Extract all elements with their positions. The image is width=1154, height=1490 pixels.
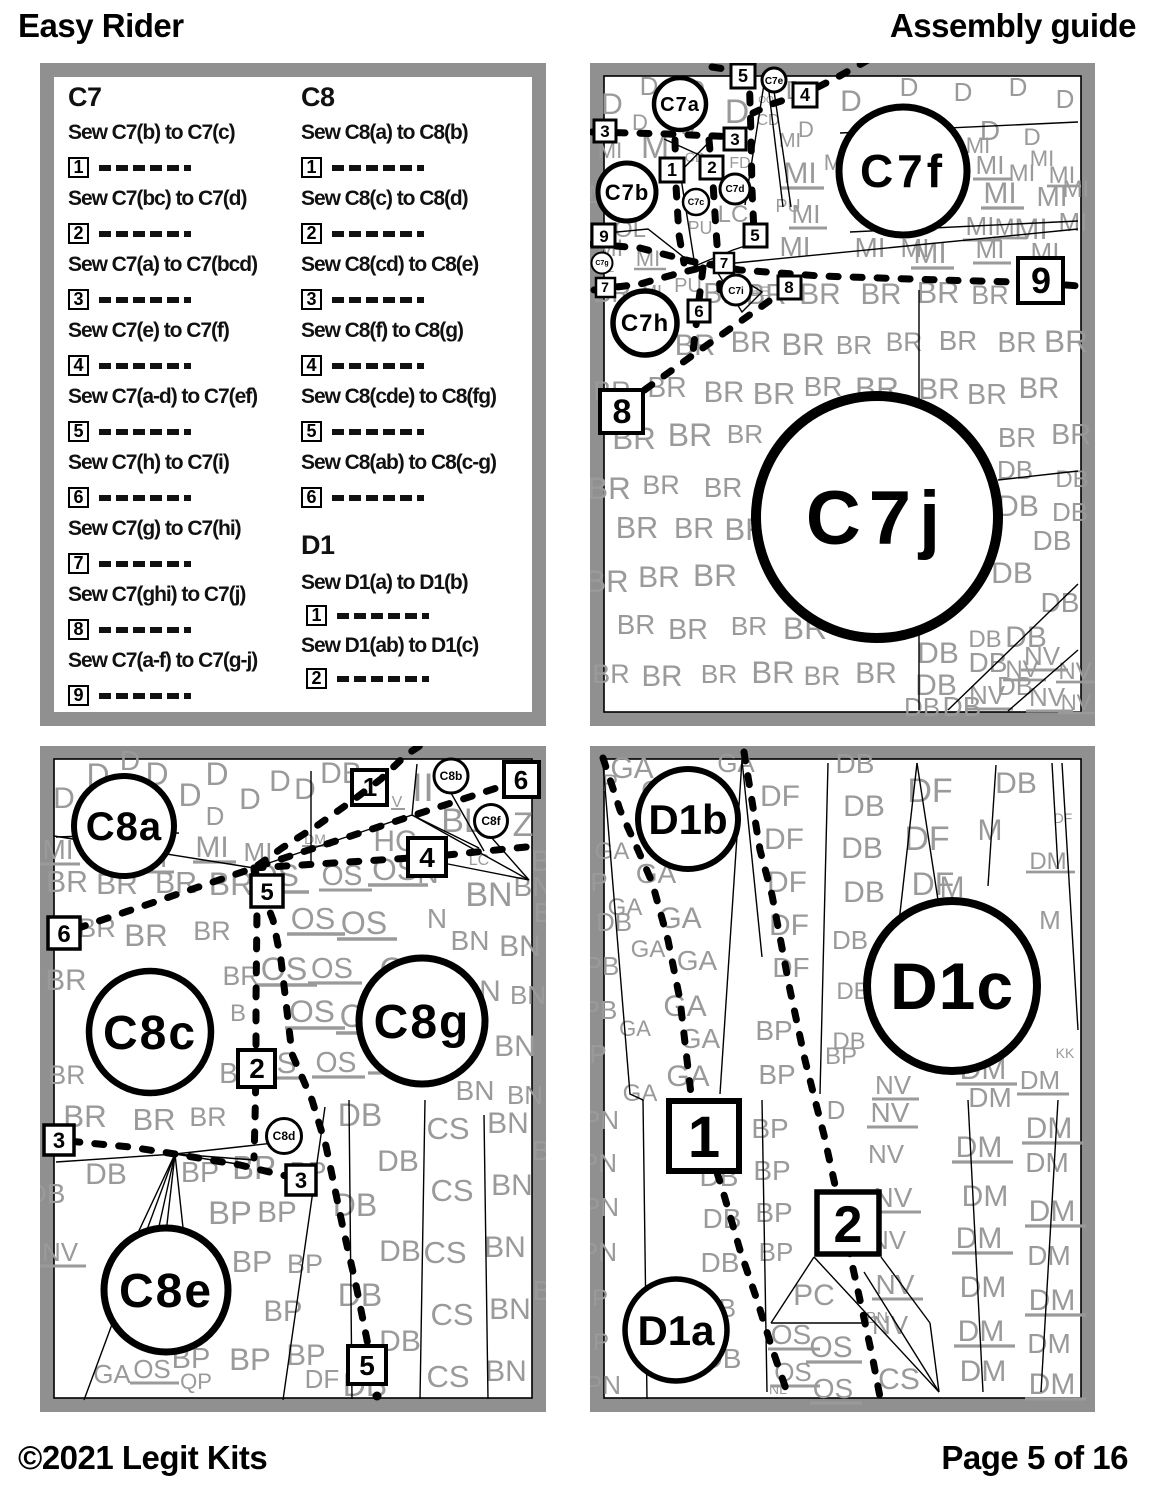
svg-text:D: D (120, 746, 140, 776)
svg-text:BR: BR (668, 417, 712, 453)
svg-text:BR: BR (804, 661, 841, 691)
svg-text:BR: BR (860, 278, 901, 311)
svg-text:9: 9 (1031, 260, 1051, 301)
svg-text:DM: DM (956, 1222, 1003, 1255)
svg-text:D: D (205, 756, 228, 792)
svg-text:BN: BN (494, 1030, 536, 1063)
svg-text:DB: DB (997, 490, 1039, 523)
svg-text:3: 3 (600, 122, 609, 141)
svg-text:NV: NV (871, 1097, 910, 1128)
svg-text:BR: BR (617, 609, 655, 640)
svg-text:C7f: C7f (860, 145, 946, 197)
svg-text:C8c: C8c (103, 1007, 197, 1060)
svg-text:D: D (900, 72, 919, 102)
svg-text:DB: DB (991, 557, 1033, 590)
svg-text:PN: PN (590, 1192, 619, 1222)
svg-text:BR: BR (45, 964, 86, 997)
svg-text:DB: DB (904, 692, 940, 722)
svg-text:BR: BR (701, 659, 738, 689)
svg-text:DB: DB (85, 1158, 127, 1191)
svg-text:DM: DM (1020, 1065, 1060, 1095)
svg-text:BR: BR (674, 513, 714, 545)
svg-text:D: D (1056, 84, 1075, 114)
svg-text:PB: PB (590, 995, 617, 1025)
svg-text:BR: BR (967, 379, 1007, 411)
svg-text:PU: PU (775, 196, 800, 216)
svg-text:B: B (230, 1000, 246, 1027)
svg-text:P: P (590, 1039, 607, 1069)
svg-text:DB: DB (997, 455, 1033, 485)
svg-text:BR: BR (836, 330, 873, 360)
svg-text:D: D (601, 88, 623, 121)
svg-text:P: P (590, 867, 607, 897)
svg-text:DM: DM (968, 1082, 1012, 1113)
svg-text:C7d: C7d (726, 184, 745, 195)
svg-text:BN: BN (499, 930, 541, 963)
svg-text:BR: BR (1019, 372, 1060, 405)
svg-text:BR: BR (638, 561, 680, 594)
svg-text:BN: BN (507, 1080, 543, 1110)
svg-text:6: 6 (514, 765, 528, 795)
svg-text:PC: PC (793, 1279, 835, 1312)
svg-text:M: M (1039, 905, 1061, 935)
svg-text:BP: BP (257, 1196, 296, 1229)
svg-text:BR: BR (132, 1102, 175, 1137)
svg-text:BN: BN (487, 1107, 529, 1140)
svg-text:7: 7 (601, 279, 609, 295)
svg-text:4: 4 (800, 85, 810, 105)
svg-text:BN: BN (510, 980, 546, 1010)
svg-text:C7i: C7i (728, 286, 744, 297)
svg-text:D1b: D1b (648, 796, 727, 843)
svg-text:8: 8 (784, 278, 793, 297)
svg-text:BR: BR (642, 469, 680, 500)
svg-text:D: D (53, 782, 75, 815)
svg-text:DF: DF (305, 1364, 340, 1394)
svg-text:BR: BR (590, 471, 631, 506)
svg-text:BR: BR (49, 1060, 86, 1090)
svg-text:CS: CS (426, 1111, 469, 1146)
svg-text:C8g: C8g (374, 996, 471, 1049)
svg-text:BP: BP (758, 1059, 795, 1090)
svg-text:OS: OS (809, 1331, 852, 1364)
svg-text:3: 3 (53, 1128, 65, 1153)
svg-text:BP: BP (232, 1245, 273, 1279)
svg-text:OS: OS (311, 953, 353, 985)
svg-text:BR: BR (753, 377, 796, 411)
svg-text:D: D (294, 773, 316, 806)
svg-text:BR: BR (693, 557, 737, 593)
svg-text:GA: GA (595, 838, 630, 865)
svg-text:D: D (725, 93, 750, 131)
svg-text:5: 5 (260, 879, 273, 906)
svg-text:2: 2 (707, 158, 716, 177)
svg-text:DB: DB (843, 790, 885, 823)
svg-text:BR: BR (704, 376, 745, 409)
svg-text:B: B (532, 1135, 546, 1166)
svg-text:FD: FD (729, 155, 750, 172)
svg-text:DB: DB (1052, 497, 1088, 527)
svg-text:DM: DM (1027, 1328, 1071, 1359)
svg-text:BP: BP (229, 1342, 271, 1377)
svg-text:1: 1 (363, 772, 377, 802)
svg-text:BR: BR (616, 511, 658, 545)
svg-text:C7b: C7b (605, 180, 650, 205)
svg-text:PN: PN (590, 1370, 621, 1400)
svg-text:BP: BP (751, 1113, 788, 1144)
svg-text:CS: CS (426, 1359, 469, 1394)
svg-text:B: B (531, 845, 546, 878)
svg-text:DB: DB (968, 626, 1001, 653)
svg-text:DB: DB (995, 767, 1037, 800)
svg-text:DM: DM (960, 1271, 1007, 1304)
svg-text:BP: BP (755, 1015, 792, 1046)
svg-text:C7g: C7g (595, 260, 608, 267)
svg-text:DB: DB (701, 1247, 740, 1278)
svg-text:DM: DM (1029, 1368, 1076, 1401)
svg-text:6: 6 (694, 302, 703, 321)
svg-text:4: 4 (419, 842, 435, 873)
svg-text:NV: NV (875, 1070, 912, 1100)
svg-text:7: 7 (720, 255, 728, 272)
svg-text:DM: DM (1025, 1147, 1069, 1178)
svg-text:1: 1 (688, 1105, 720, 1170)
svg-text:BR: BR (939, 325, 977, 356)
svg-text:D: D (840, 85, 862, 118)
svg-text:9: 9 (599, 227, 608, 246)
svg-text:C8a: C8a (86, 805, 162, 849)
svg-text:OS: OS (341, 905, 387, 941)
svg-text:BR: BR (189, 1102, 226, 1132)
svg-text:C7a: C7a (660, 94, 700, 116)
svg-text:DM: DM (1026, 1112, 1073, 1145)
svg-text:BR: BR (998, 422, 1036, 453)
svg-text:OS: OS (813, 1373, 853, 1404)
svg-text:BN: BN (491, 1169, 533, 1202)
svg-text:MI: MI (1009, 160, 1036, 187)
svg-text:DB: DB (1041, 587, 1080, 618)
svg-text:GA: GA (623, 1080, 658, 1107)
svg-text:B: B (533, 1275, 546, 1306)
svg-text:KK: KK (1056, 1045, 1075, 1061)
svg-text:D: D (239, 783, 261, 816)
svg-text:PN: PN (590, 1105, 619, 1135)
svg-text:BN: BN (456, 1075, 495, 1106)
svg-text:D: D (954, 77, 973, 107)
svg-text:BR: BR (886, 327, 923, 357)
svg-text:NV: NV (868, 1139, 905, 1169)
svg-text:N: N (427, 903, 447, 934)
svg-text:2: 2 (834, 1196, 863, 1254)
svg-text:OS: OS (133, 1354, 171, 1384)
svg-text:DB: DB (379, 1235, 421, 1268)
svg-text:NV: NV (1061, 690, 1092, 715)
svg-text:DB: DB (841, 832, 883, 865)
svg-text:CD: CD (756, 112, 779, 129)
svg-text:P: P (592, 1285, 608, 1312)
svg-text:BR: BR (799, 278, 841, 311)
svg-text:C7j: C7j (806, 476, 948, 561)
svg-text:BR: BR (1051, 419, 1091, 451)
svg-text:3: 3 (730, 130, 739, 149)
svg-text:DF: DF (760, 780, 800, 813)
svg-text:C7c: C7c (688, 197, 705, 207)
svg-text:BP: BP (208, 1194, 252, 1231)
svg-text:DB: DB (836, 748, 875, 779)
svg-text:DB: DB (832, 925, 868, 955)
svg-text:M: M (978, 814, 1003, 847)
svg-text:PU: PU (687, 218, 712, 238)
svg-text:DB: DB (338, 1097, 382, 1133)
svg-text:BR: BR (727, 419, 764, 449)
svg-text:BR: BR (46, 866, 88, 899)
svg-text:GA: GA (677, 945, 718, 976)
svg-text:DB: DB (377, 1145, 419, 1178)
svg-text:BR: BR (997, 326, 1036, 358)
svg-text:BN: BN (485, 1355, 527, 1388)
svg-text:5: 5 (359, 1350, 375, 1381)
svg-text:MI: MI (854, 232, 885, 263)
svg-text:B: B (534, 897, 546, 928)
svg-text:OS: OS (291, 901, 335, 936)
svg-text:DB: DB (1055, 466, 1088, 493)
svg-text:DB: DB (843, 876, 885, 909)
svg-text:C8b: C8b (440, 769, 463, 783)
svg-text:CS: CS (430, 1297, 473, 1332)
svg-text:6: 6 (57, 921, 70, 948)
svg-text:D: D (206, 801, 225, 831)
svg-text:C7e: C7e (765, 76, 784, 87)
svg-text:BP: BP (287, 1249, 323, 1279)
svg-text:PN: PN (590, 1237, 617, 1267)
svg-text:BR: BR (804, 371, 843, 402)
svg-text:BR: BR (731, 611, 768, 641)
svg-text:BR: BR (642, 660, 683, 693)
svg-text:P: P (593, 1329, 609, 1356)
svg-text:BR: BR (1044, 323, 1088, 359)
svg-text:OS: OS (289, 993, 335, 1029)
svg-text:CS: CS (423, 1235, 466, 1270)
svg-text:5: 5 (750, 226, 759, 245)
svg-text:BR: BR (668, 614, 708, 646)
svg-text:Z: Z (513, 806, 534, 844)
svg-text:D: D (269, 765, 291, 798)
svg-text:D: D (827, 1095, 846, 1125)
svg-text:DF: DF (1054, 810, 1073, 826)
svg-text:DM: DM (962, 1180, 1009, 1213)
svg-text:D1a: D1a (637, 1307, 715, 1354)
svg-text:BP: BP (753, 1155, 790, 1186)
svg-text:2: 2 (249, 1053, 265, 1084)
svg-text:BR: BR (781, 327, 824, 362)
svg-text:BN: BN (451, 925, 490, 956)
svg-text:C8e: C8e (119, 1265, 213, 1318)
svg-text:1: 1 (667, 160, 677, 180)
svg-text:GA: GA (93, 1359, 131, 1389)
svg-text:CS: CS (430, 1173, 473, 1208)
svg-text:DB: DB (596, 907, 632, 937)
svg-text:PB: PB (590, 951, 619, 981)
svg-text:5: 5 (738, 66, 748, 86)
svg-text:BR: BR (590, 564, 629, 599)
svg-text:DM: DM (1029, 1284, 1076, 1317)
svg-text:DF: DF (772, 952, 809, 983)
svg-text:OS: OS (316, 1047, 357, 1079)
svg-text:BN: BN (484, 1231, 526, 1264)
svg-text:BP: BP (825, 1043, 857, 1070)
svg-text:BR: BR (855, 657, 897, 690)
svg-text:BN: BN (489, 1293, 531, 1326)
svg-text:D1c: D1c (890, 949, 1014, 1023)
svg-text:C8f: C8f (481, 814, 501, 828)
svg-text:BR: BR (751, 655, 794, 690)
svg-text:BR: BR (124, 918, 167, 953)
svg-text:DF: DF (764, 823, 804, 856)
svg-text:BR: BR (704, 472, 743, 503)
svg-text:BN: BN (465, 876, 512, 914)
svg-text:MI: MI (966, 133, 990, 158)
svg-text:D: D (178, 777, 201, 813)
svg-text:C8d: C8d (273, 1129, 296, 1143)
svg-text:PN: PN (590, 1148, 617, 1178)
svg-text:8: 8 (613, 393, 632, 431)
svg-text:BR: BR (193, 916, 230, 946)
svg-text:NV: NV (42, 1237, 79, 1267)
svg-text:CS: CS (878, 1363, 920, 1396)
svg-text:DB: DB (1033, 525, 1072, 556)
svg-text:D: D (1009, 72, 1028, 102)
svg-text:GA: GA (631, 936, 666, 963)
svg-text:DB: DB (917, 637, 959, 670)
svg-text:DM: DM (956, 1131, 1003, 1164)
svg-text:BR: BR (731, 326, 772, 359)
svg-text:BP: BP (755, 1197, 792, 1228)
svg-text:DB: DB (40, 1178, 65, 1209)
svg-text:QP: QP (180, 1369, 212, 1394)
svg-text:C7h: C7h (621, 310, 669, 337)
svg-text:3: 3 (295, 1168, 307, 1193)
svg-text:BR: BR (592, 659, 629, 689)
